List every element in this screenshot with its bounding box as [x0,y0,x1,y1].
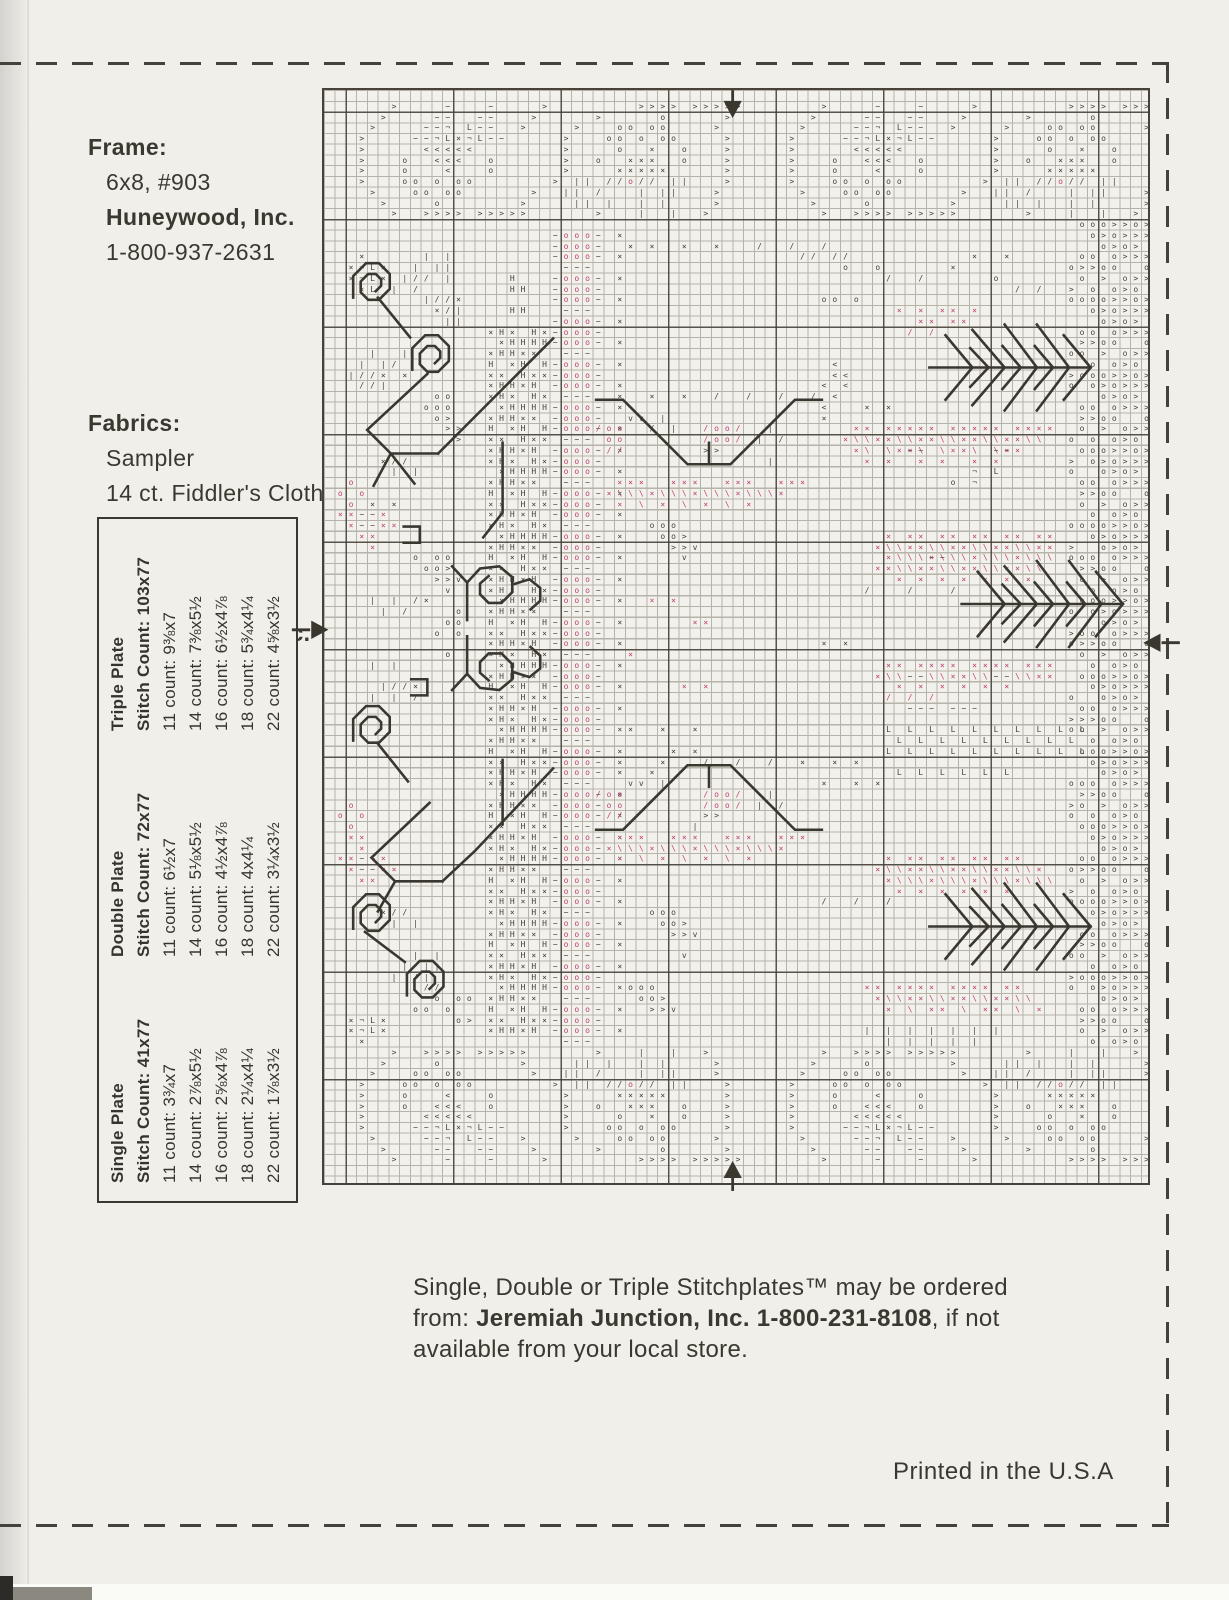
page-left-edge-shadow [0,0,26,1600]
backstitch-motif [371,768,553,911]
plate-count-line: 16 count: 6½x4⅞ [209,523,235,731]
plate-count-line: 14 count: 7⅜x5½ [183,523,209,731]
center-arrow-top [724,90,742,118]
scan-bottom-bar [0,1587,92,1600]
backstitch-motif [962,561,1123,647]
ordering-note-text: Jeremiah Junction, Inc. 1-800-231-8108 [476,1305,932,1332]
backstitch-motif [353,894,390,931]
ordering-note-text: , if not [932,1305,1000,1332]
plate-count-line: 14 count: 5⅛x5½ [183,749,209,957]
backstitch-motif [353,263,390,300]
plate-count-line: 18 count: 2¼x4¼ [235,975,261,1183]
frame-info: Frame:6x8, #903Huneywood, Inc.1-800-937-… [88,130,295,270]
frame-info-line: 1-800-937-2631 [88,235,295,270]
frame-info-heading: Frame: [88,130,295,165]
fabrics-info: Fabrics:Sampler14 ct. Fiddler's Cloth [88,406,324,511]
fabrics-info-line: Sampler [88,441,324,476]
plate-title: Triple Plate [105,523,131,731]
scanned-pattern-page: Frame:6x8, #903Huneywood, Inc.1-800-937-… [0,0,1229,1600]
fabrics-info-line: 14 ct. Fiddler's Cloth [88,476,324,511]
ordering-note-text: available from your local store. [413,1336,748,1363]
plate-stitch-count: Stitch Count: 72x77 [131,749,157,957]
frame-info-line: 6x8, #903 [88,165,295,200]
plate-count-line: 16 count: 4½x4⅞ [209,749,235,957]
backstitch-motif [407,961,444,998]
backstitch-motif [596,400,822,465]
ordering-note-text: Single, Double or Triple Stitchplates™ m… [413,1274,1008,1301]
ordering-note-line: Single, Double or Triple Stitchplates™ m… [413,1272,1093,1303]
plate-count-line: 18 count: 5¾x4¼ [235,523,261,731]
plate-stitch-count: Stitch Count: 103x77 [131,523,157,731]
plate-count-line: 22 count: 1⅞x3½ [261,975,287,1183]
plate-count-line: 11 count: 6½x7 [157,749,183,957]
plate-group: Double PlateStitch Count: 72x7711 count:… [99,745,292,971]
frame-info-line: Huneywood, Inc. [88,200,295,235]
backstitch-overlay [322,88,1150,1185]
page-crease [27,0,29,1600]
stitch-chart: >−−>>>>>>>>>>>−−>>>>>>>>>−−−−>>o>>−−−−>>… [322,88,1150,1185]
backstitch-motif [367,338,553,485]
backstitch-motif [378,298,410,338]
plate-sizes-rotated-content: Single PlateStitch Count: 41x7711 count:… [99,519,292,1197]
cut-line-top [0,62,1169,65]
center-arrow-right [1143,634,1180,652]
fabrics-info-heading: Fabrics: [88,406,324,441]
backstitch-motif [929,884,1090,970]
backstitch-motif [596,765,822,830]
backstitch-motif [404,527,420,543]
plate-count-line: 11 count: 3¾x7 [157,975,183,1183]
cut-line-bottom [0,1524,1169,1527]
backstitch-motif [412,335,449,372]
backstitch-motif [929,325,1090,411]
backstitch-motif [483,443,502,538]
plate-count-line: 18 count: 4x4¼ [235,749,261,957]
plate-count-line: 16 count: 2⅝x4⅞ [209,975,235,1183]
backstitch-motif [378,744,408,782]
scan-corner-artifact [0,1576,13,1600]
backstitch-motif [365,932,405,962]
printed-in-usa-label: Printed in the U.S.A [893,1458,1114,1486]
backstitch-motif [411,679,427,695]
ordering-note-line: available from your local store. [413,1334,1093,1365]
plate-title: Single Plate [105,975,131,1183]
backstitch-motif [452,566,540,620]
plate-count-line: 22 count: 3¼x3½ [261,749,287,957]
plate-count-line: 14 count: 2⅞x5½ [183,975,209,1183]
scan-bottom-strip [0,1584,1229,1600]
cut-line-right [1166,62,1169,1526]
ordering-note-text: from: [413,1305,476,1332]
center-arrow-bottom [724,1161,742,1191]
plate-stitch-count: Stitch Count: 41x77 [131,975,157,1183]
plate-group: Single PlateStitch Count: 41x7711 count:… [99,971,292,1197]
plate-sizes-table: Single PlateStitch Count: 41x7711 count:… [97,517,298,1203]
ordering-note-line: from: Jeremiah Junction, Inc. 1-800-231-… [413,1303,1093,1334]
plate-count-line: 22 count: 4⅝x3½ [261,523,287,731]
plate-group: Triple PlateStitch Count: 103x7711 count… [99,519,292,745]
ordering-note: Single, Double or Triple Stitchplates™ m… [413,1272,1093,1365]
plate-title: Double Plate [105,749,131,957]
backstitch-motif [452,636,540,690]
plate-count-line: 11 count: 9⅜x7 [157,523,183,731]
backstitch-motif [353,706,390,743]
